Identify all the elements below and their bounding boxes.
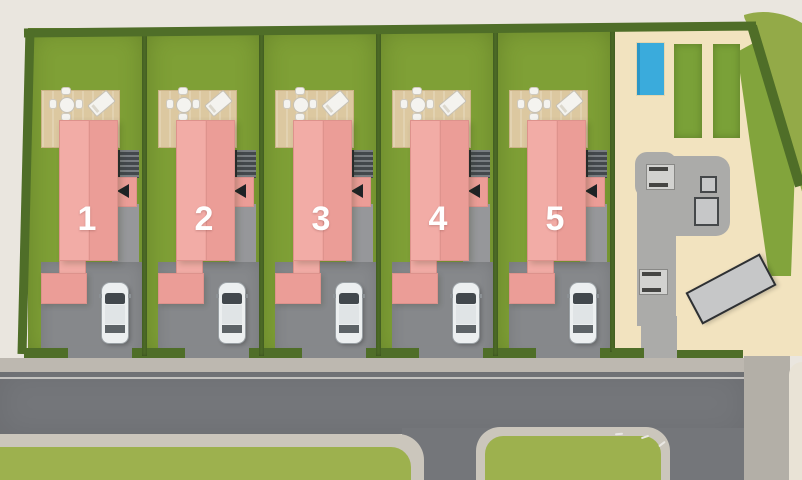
- car-roof: [573, 305, 593, 324]
- plot-region[interactable]: 1: [28, 28, 145, 358]
- entrance-arrow-icon: [468, 184, 480, 198]
- entrance-arrow-icon: [585, 184, 597, 198]
- hedge-divider-2: [259, 30, 264, 356]
- stairs-icon: [467, 150, 490, 178]
- car-roof: [339, 305, 359, 324]
- planting-margin: [737, 40, 795, 276]
- car-mirror: [333, 294, 336, 298]
- dining-table-icon: [287, 91, 313, 117]
- plots-site: 1 2: [28, 28, 613, 358]
- car-rear-window: [222, 325, 242, 333]
- parked-car-icon: [570, 283, 596, 343]
- parked-car-icon: [102, 283, 128, 343]
- chair-icon: [530, 88, 538, 94]
- hedge-divider-4: [493, 30, 498, 356]
- car-mirror: [596, 294, 599, 298]
- chair-icon: [167, 100, 173, 108]
- hedge-diagonal: [752, 26, 800, 186]
- car-rear-window: [573, 325, 593, 333]
- plot-region[interactable]: 3: [262, 28, 379, 358]
- car-windshield: [222, 293, 242, 304]
- car-roof: [105, 305, 125, 324]
- table-top: [527, 97, 543, 113]
- lounger-foot-rail: [642, 288, 661, 292]
- entrance-arrow-icon: [117, 184, 129, 198]
- stairs-icon: [233, 150, 256, 178]
- road-edge-line: [0, 377, 744, 379]
- dining-table-icon: [521, 91, 547, 117]
- parked-car-icon: [336, 283, 362, 343]
- roof-ridge: [89, 121, 90, 260]
- car-roof: [222, 305, 242, 324]
- lounger-foot-rail: [649, 183, 668, 187]
- island-lawn: [485, 436, 661, 480]
- chair-icon: [413, 88, 421, 94]
- stairs-icon: [350, 150, 373, 178]
- lawn-verge: [0, 447, 411, 480]
- chair-icon: [544, 100, 550, 108]
- garage-roof: [275, 273, 321, 304]
- stairs-icon: [116, 150, 139, 178]
- car-mirror: [245, 294, 248, 298]
- table-top: [176, 97, 192, 113]
- chair-icon: [76, 100, 82, 108]
- table-top: [293, 97, 309, 113]
- communal-path: [637, 190, 676, 326]
- planter-small: [700, 176, 717, 193]
- car-mirror: [479, 294, 482, 298]
- side-walkway: [789, 362, 802, 480]
- hedge-segment: [141, 348, 185, 358]
- roof-ridge: [323, 121, 324, 260]
- hedge-divider-1: [142, 30, 147, 356]
- garage-roof: [392, 273, 438, 304]
- chair-icon: [179, 88, 187, 94]
- swimming-pool: [637, 43, 664, 95]
- plot-number: 1: [65, 200, 109, 238]
- car-windshield: [573, 293, 593, 304]
- planter-large: [694, 197, 719, 226]
- plot-number: 4: [416, 200, 460, 238]
- lounger-head-rail: [642, 272, 661, 276]
- table-top: [59, 97, 75, 113]
- car-rear-window: [105, 325, 125, 333]
- chair-icon: [401, 100, 407, 108]
- hedge-segment: [24, 348, 68, 358]
- car-windshield: [456, 293, 476, 304]
- side-road: [744, 356, 790, 480]
- car-rear-window: [339, 325, 359, 333]
- chair-icon: [50, 100, 56, 108]
- car-roof: [456, 305, 476, 324]
- stairs-icon: [584, 150, 607, 178]
- plot-region[interactable]: 5: [496, 28, 613, 358]
- communal-hedge-left: [612, 348, 644, 358]
- dining-table-icon: [404, 91, 430, 117]
- main-road: [0, 372, 744, 434]
- chair-icon: [310, 100, 316, 108]
- hedge-divider-3: [376, 30, 381, 356]
- entrance-arrow-icon: [351, 184, 363, 198]
- house-roof: [410, 120, 469, 261]
- roof-ridge: [206, 121, 207, 260]
- roof-ridge: [557, 121, 558, 260]
- traffic-island: [476, 427, 670, 480]
- car-windshield: [339, 293, 359, 304]
- chair-icon: [62, 88, 70, 94]
- plot-number: 5: [533, 200, 577, 238]
- garage-roof: [509, 273, 555, 304]
- chair-icon: [518, 100, 524, 108]
- parked-car-icon: [219, 283, 245, 343]
- plot-number: 2: [182, 200, 226, 238]
- car-mirror: [567, 294, 570, 298]
- parked-car-icon: [453, 283, 479, 343]
- house-roof: [176, 120, 235, 261]
- hedge-segment: [375, 348, 419, 358]
- car-mirror: [99, 294, 102, 298]
- lounger-head-rail: [649, 167, 668, 171]
- car-mirror: [362, 294, 365, 298]
- plot-region[interactable]: 4: [379, 28, 496, 358]
- plot-number: 3: [299, 200, 343, 238]
- outbuilding: [685, 253, 776, 324]
- garage-roof: [41, 273, 87, 304]
- sun-lounger-icon: [646, 164, 675, 190]
- car-mirror: [128, 294, 131, 298]
- house-roof: [59, 120, 118, 261]
- plot-region[interactable]: 2: [145, 28, 262, 358]
- roof-ridge: [440, 121, 441, 260]
- garage-roof: [158, 273, 204, 304]
- house-roof: [527, 120, 586, 261]
- siteplan-scene: 1 2: [0, 0, 802, 480]
- entrance-arrow-icon: [234, 184, 246, 198]
- dining-table-icon: [170, 91, 196, 117]
- chair-icon: [427, 100, 433, 108]
- table-top: [410, 97, 426, 113]
- car-rear-window: [456, 325, 476, 333]
- hedge-segment: [258, 348, 302, 358]
- house-roof: [293, 120, 352, 261]
- planting-bed-1: [674, 44, 702, 138]
- car-mirror: [450, 294, 453, 298]
- chair-icon: [193, 100, 199, 108]
- dining-table-icon: [53, 91, 79, 117]
- curb-strip: [0, 358, 744, 372]
- chair-icon: [284, 100, 290, 108]
- car-mirror: [216, 294, 219, 298]
- hedge-divider-5: [610, 30, 615, 352]
- car-windshield: [105, 293, 125, 304]
- sun-lounger-icon: [639, 269, 668, 295]
- planting-bed-2: [713, 44, 740, 138]
- chair-icon: [296, 88, 304, 94]
- hedge-segment: [492, 348, 536, 358]
- background-field: [744, 12, 802, 192]
